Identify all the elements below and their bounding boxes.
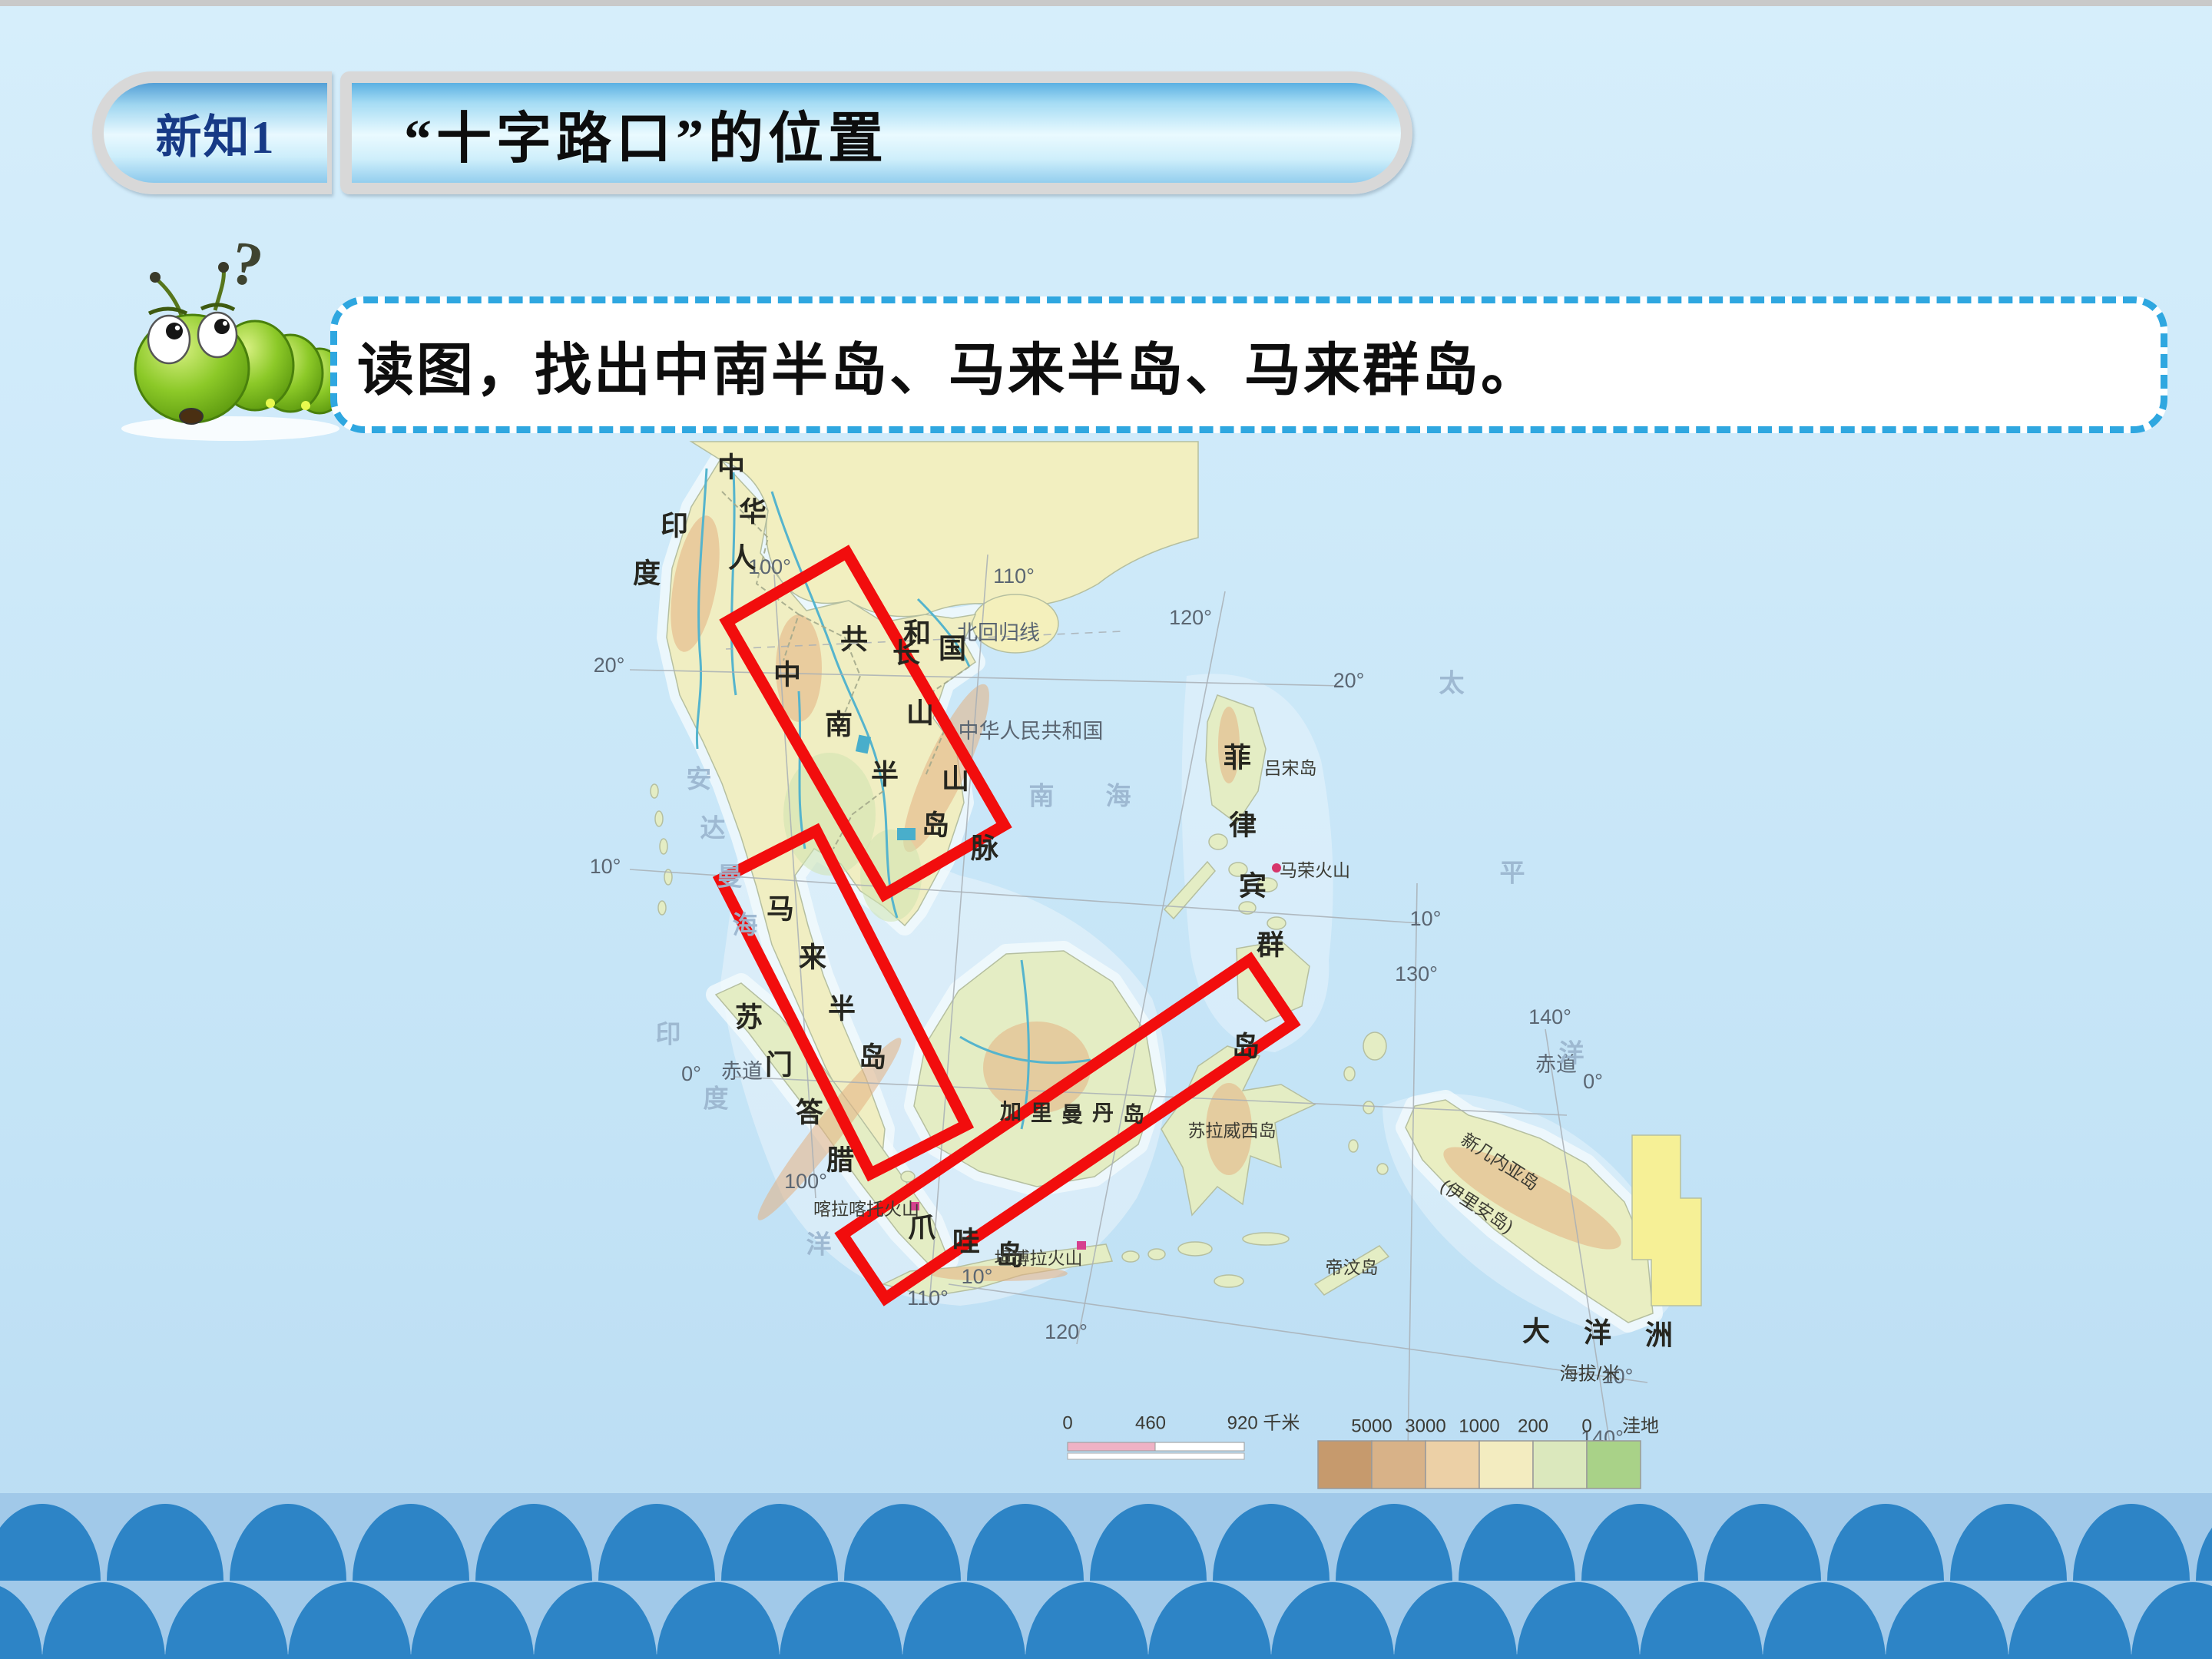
map-label: 半 (871, 759, 899, 790)
glint (223, 321, 227, 326)
question-text: 读图，找出中南半岛、马来半岛、马来群岛。 (357, 324, 1540, 406)
map-label: 海 (1106, 783, 1131, 811)
map-label: 120° (1045, 1320, 1088, 1343)
map-label: 加 (1000, 1099, 1022, 1124)
map-label: 洲 (1645, 1320, 1673, 1350)
map-label: 平 (1500, 860, 1525, 888)
segment-dot (301, 401, 310, 410)
map-label: 丹 (1092, 1101, 1114, 1125)
legend-swatch (1426, 1441, 1479, 1488)
map-label: 110° (993, 565, 1035, 588)
antenna-tip (150, 272, 161, 283)
map-label: 达 (700, 815, 726, 843)
andaman (658, 901, 666, 915)
mouth (180, 409, 203, 424)
southeast-asia-map: 100°110°120°130°140°20°20°10°10°0°赤道赤道0°… (591, 430, 1743, 1505)
scalebar-segment (1068, 1442, 1155, 1451)
legend-value: 1000 (1459, 1416, 1499, 1436)
mascot-shadow (121, 416, 339, 441)
map-label: 20° (594, 654, 625, 677)
map-label: 120° (1169, 606, 1212, 629)
map-label: 海 (733, 912, 758, 940)
eye-left (148, 316, 190, 363)
map-label: 度 (704, 1085, 729, 1114)
map-label: 山 (942, 763, 969, 794)
legend-swatch (1318, 1441, 1372, 1488)
map-label: 岛 (922, 810, 949, 840)
maluku (1363, 1101, 1374, 1114)
map-label: 宾 (1239, 870, 1267, 901)
map-label: 岛 (1123, 1101, 1144, 1127)
map-label: 0° (1583, 1070, 1603, 1093)
map-label: 曼 (1061, 1103, 1083, 1127)
legend-swatch (1479, 1441, 1533, 1488)
legend-value: 3000 (1405, 1416, 1445, 1436)
map-label: 10° (591, 855, 621, 878)
map-label: 帝汶岛 (1326, 1257, 1379, 1277)
legend-value: 0 (1581, 1416, 1591, 1436)
pupil-right (214, 319, 230, 334)
map-label: 大 (1522, 1316, 1550, 1346)
map-label: 华 (739, 496, 767, 527)
map-label: 中华人民共和国 (959, 720, 1104, 743)
question-mark-icon: ? (226, 229, 268, 301)
andaman (655, 811, 663, 826)
map-label: 马 (767, 893, 794, 924)
scalebar-segment (1068, 1453, 1244, 1459)
map-label: 律 (1229, 810, 1257, 840)
legend-value: 200 (1518, 1416, 1548, 1436)
map-label: 喀拉喀托火山 (813, 1199, 919, 1219)
map-label: 太 (1439, 670, 1465, 698)
wave-row-back (0, 1504, 2212, 1581)
map-label: 脉 (971, 833, 999, 863)
map-label: 马荣火山 (1280, 860, 1350, 880)
map-label: 人 (728, 542, 756, 573)
mindoro (1209, 834, 1227, 849)
legend-swatch (1533, 1441, 1587, 1488)
maluku (1349, 1140, 1358, 1152)
header-tab-label: 新知1 (156, 100, 276, 167)
legend-title: 海拔/米 (1560, 1363, 1621, 1384)
map-label: 岛 (1232, 1031, 1260, 1061)
map-label: 中 (717, 452, 745, 482)
wave-row-front (0, 1582, 2212, 1659)
header-bar: “十字路口”的位置 (340, 71, 1412, 194)
maluku (1377, 1164, 1388, 1174)
map-label: 吕宋岛 (1264, 758, 1317, 778)
scalebar-segment (1155, 1442, 1244, 1451)
eye-right (198, 313, 237, 357)
map-label: 答 (796, 1097, 824, 1128)
map-label: 半 (828, 993, 856, 1024)
map-label: 坦博拉火山 (995, 1248, 1083, 1268)
antenna-tip (218, 262, 229, 273)
map-label: 山 (906, 697, 934, 728)
legend-value: 5000 (1351, 1416, 1392, 1436)
map-label: 苏 (735, 1002, 763, 1032)
map-label: 10° (962, 1265, 993, 1288)
flores (1243, 1233, 1289, 1245)
map-label: 130° (1395, 962, 1438, 985)
legend-value: 洼地 (1622, 1416, 1659, 1436)
map-label: 哇 (952, 1226, 980, 1257)
map-label: 度 (633, 558, 661, 588)
map-label: 中 (773, 659, 801, 690)
lombok (1148, 1249, 1165, 1260)
bali (1122, 1251, 1139, 1262)
maluku (1344, 1067, 1355, 1081)
map-label: 长 (892, 637, 920, 668)
map-label: 来 (799, 942, 826, 972)
legend-swatch (1587, 1441, 1641, 1488)
map-label: 菲 (1224, 742, 1251, 773)
page-title: “十字路口”的位置 (404, 93, 888, 174)
map-label: 20° (1333, 669, 1365, 692)
map-label: 110° (907, 1286, 949, 1310)
top-strip (0, 0, 2212, 6)
map-label: 印 (656, 1022, 681, 1049)
map-label: 国 (939, 633, 966, 664)
wave-base (0, 1654, 2212, 1659)
question-box: 读图，找出中南半岛、马来半岛、马来群岛。 (330, 296, 2167, 433)
pupil-left (166, 323, 183, 339)
scalebar-label: 0 (1062, 1412, 1072, 1433)
map-label: 洋 (1559, 1040, 1584, 1068)
map-label: 群 (1257, 929, 1284, 960)
map-label: 苏拉威西岛 (1188, 1121, 1277, 1141)
header-tab: 新知1 (92, 71, 332, 194)
map-label: 洋 (1584, 1317, 1611, 1348)
halmahera (1363, 1032, 1386, 1060)
scalebar-label: 460 (1135, 1412, 1166, 1433)
map-label: 北回归线 (957, 621, 1040, 644)
map-label: 0° (681, 1062, 701, 1085)
map-label: 印 (661, 510, 688, 541)
map-label: 岛 (859, 1041, 886, 1072)
map-label: 140° (1528, 1005, 1571, 1028)
map-label: 洋 (806, 1231, 832, 1260)
slide: 新知1 “十字路口”的位置 ? 读图，找出中南半 (0, 0, 2212, 1659)
map-label: 腊 (826, 1144, 854, 1175)
scalebar-label: 920 千米 (1227, 1412, 1300, 1433)
map-label: 100° (784, 1170, 827, 1193)
map-label: 安 (687, 766, 712, 794)
andaman (651, 784, 658, 798)
map-label: 曼 (717, 864, 743, 892)
sumbawa (1178, 1242, 1212, 1256)
glint (175, 326, 180, 330)
map-label: 南 (825, 709, 853, 740)
map-label: 赤道 (721, 1060, 763, 1083)
visayas (1267, 917, 1286, 929)
map-label: 门 (765, 1049, 793, 1080)
legend-swatch (1372, 1441, 1426, 1488)
tonle-sap-lake (897, 828, 916, 840)
sumba (1214, 1275, 1243, 1287)
wave-pattern (0, 1488, 2212, 1659)
map-label: 里 (1031, 1101, 1052, 1125)
andaman (660, 839, 667, 854)
map-label: 共 (840, 624, 868, 654)
eyebrow-left (149, 309, 187, 313)
map-label: 10° (1410, 907, 1442, 930)
map-label: 南 (1029, 783, 1055, 811)
segment-dot (266, 399, 275, 408)
map-scalebar: 0460920 千米 (1062, 1412, 1300, 1459)
